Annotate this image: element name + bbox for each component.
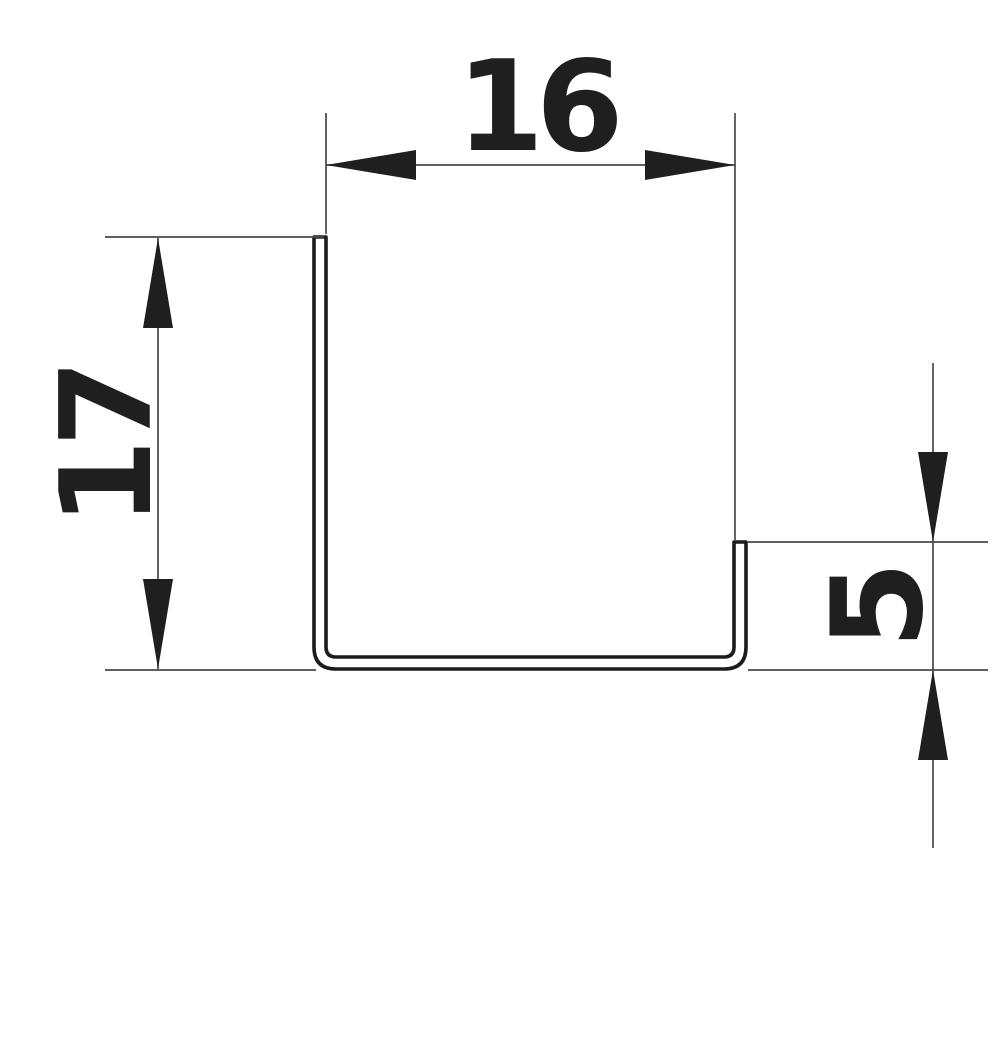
arrow-down-icon	[918, 452, 948, 542]
profile-outline	[314, 237, 746, 669]
dimension-lip: 5	[748, 363, 988, 848]
dimension-width-label: 16	[456, 33, 617, 180]
dimension-height-label: 17	[33, 367, 180, 526]
dimension-lip-label: 5	[804, 561, 951, 649]
arrow-down-icon	[143, 579, 173, 669]
arrow-right-icon	[645, 150, 735, 180]
dimension-height: 17	[33, 237, 324, 670]
profile-drawing-svg: 16 17 5	[0, 0, 1008, 1048]
technical-drawing-canvas: 16 17 5	[0, 0, 1008, 1048]
arrow-left-icon	[326, 150, 416, 180]
arrow-up-icon	[918, 670, 948, 760]
dimension-width: 16	[326, 33, 735, 540]
arrow-up-icon	[143, 238, 173, 328]
